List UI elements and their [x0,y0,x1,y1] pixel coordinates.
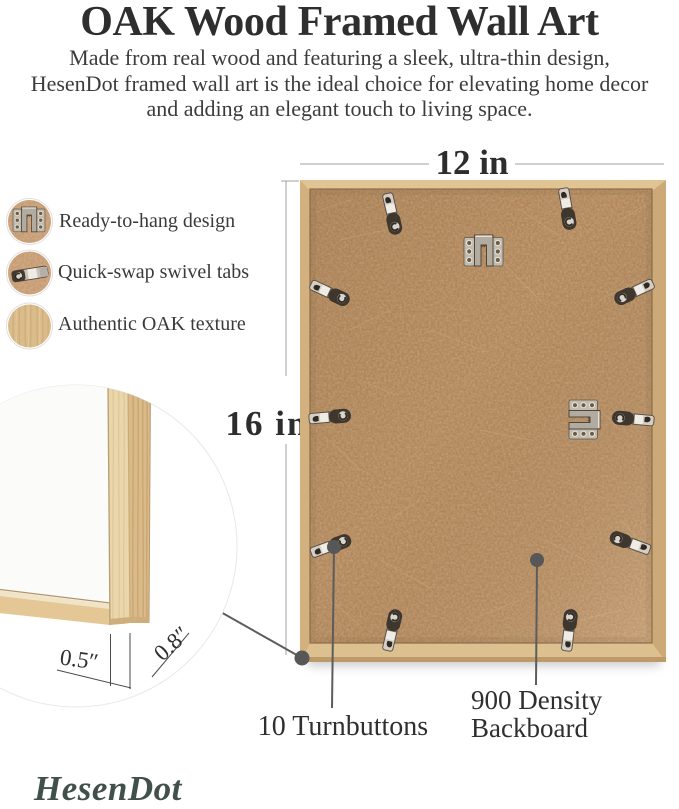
svg-text:0.5″: 0.5″ [58,644,99,674]
